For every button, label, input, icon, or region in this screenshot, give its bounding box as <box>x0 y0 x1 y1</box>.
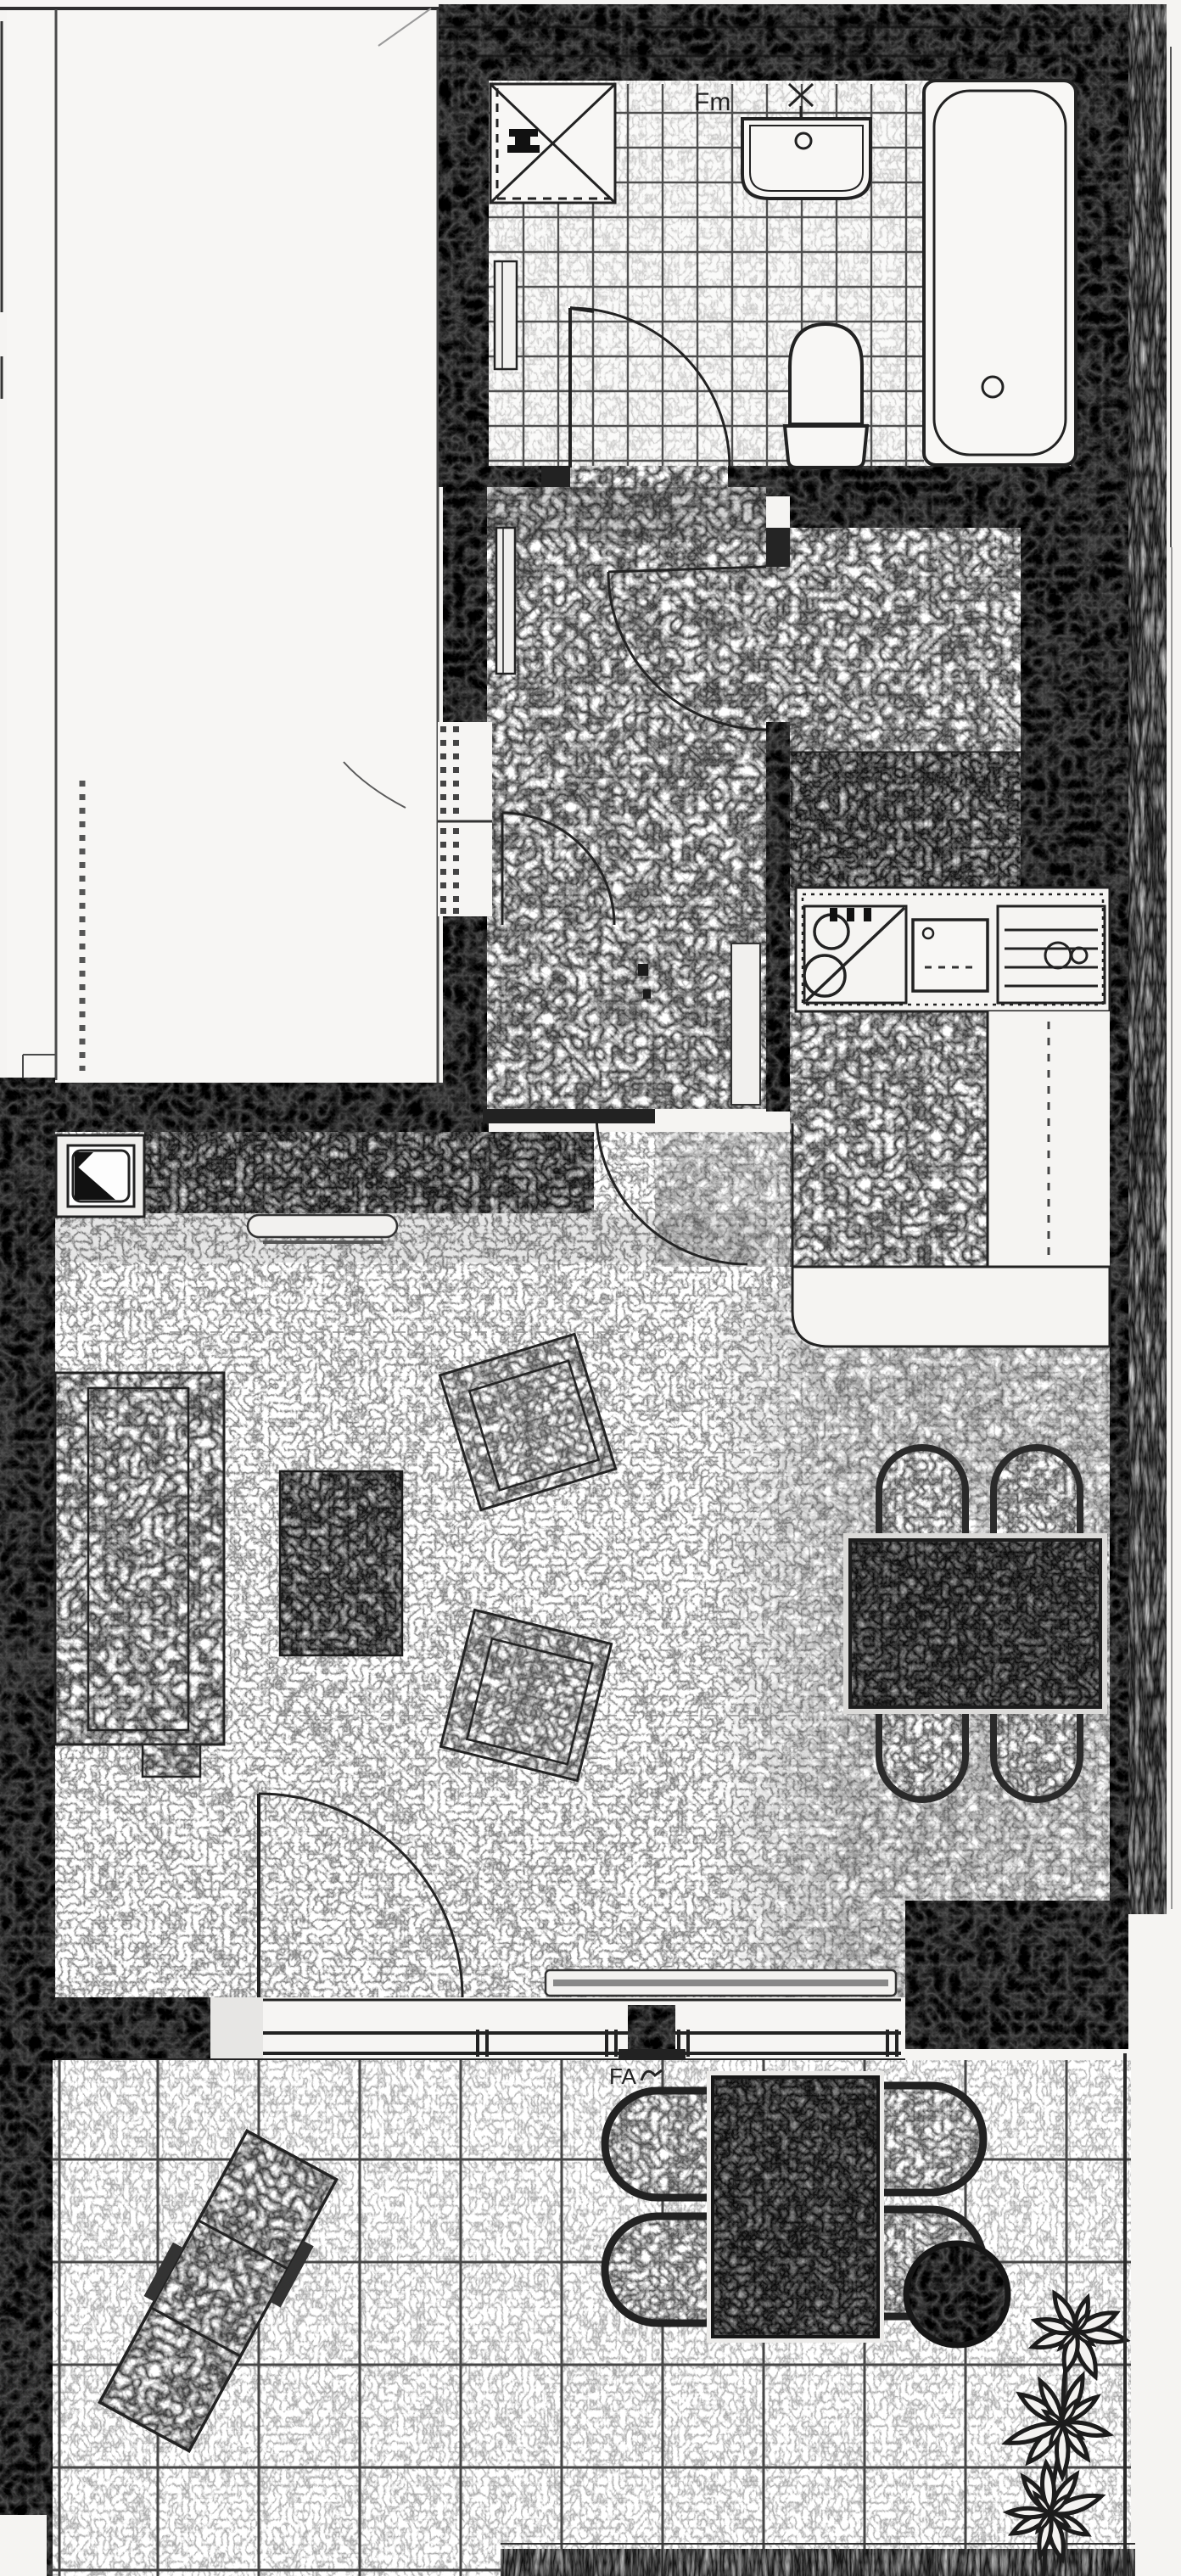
svg-text:Fm: Fm <box>694 88 730 116</box>
svg-text:FA: FA <box>609 2064 636 2089</box>
